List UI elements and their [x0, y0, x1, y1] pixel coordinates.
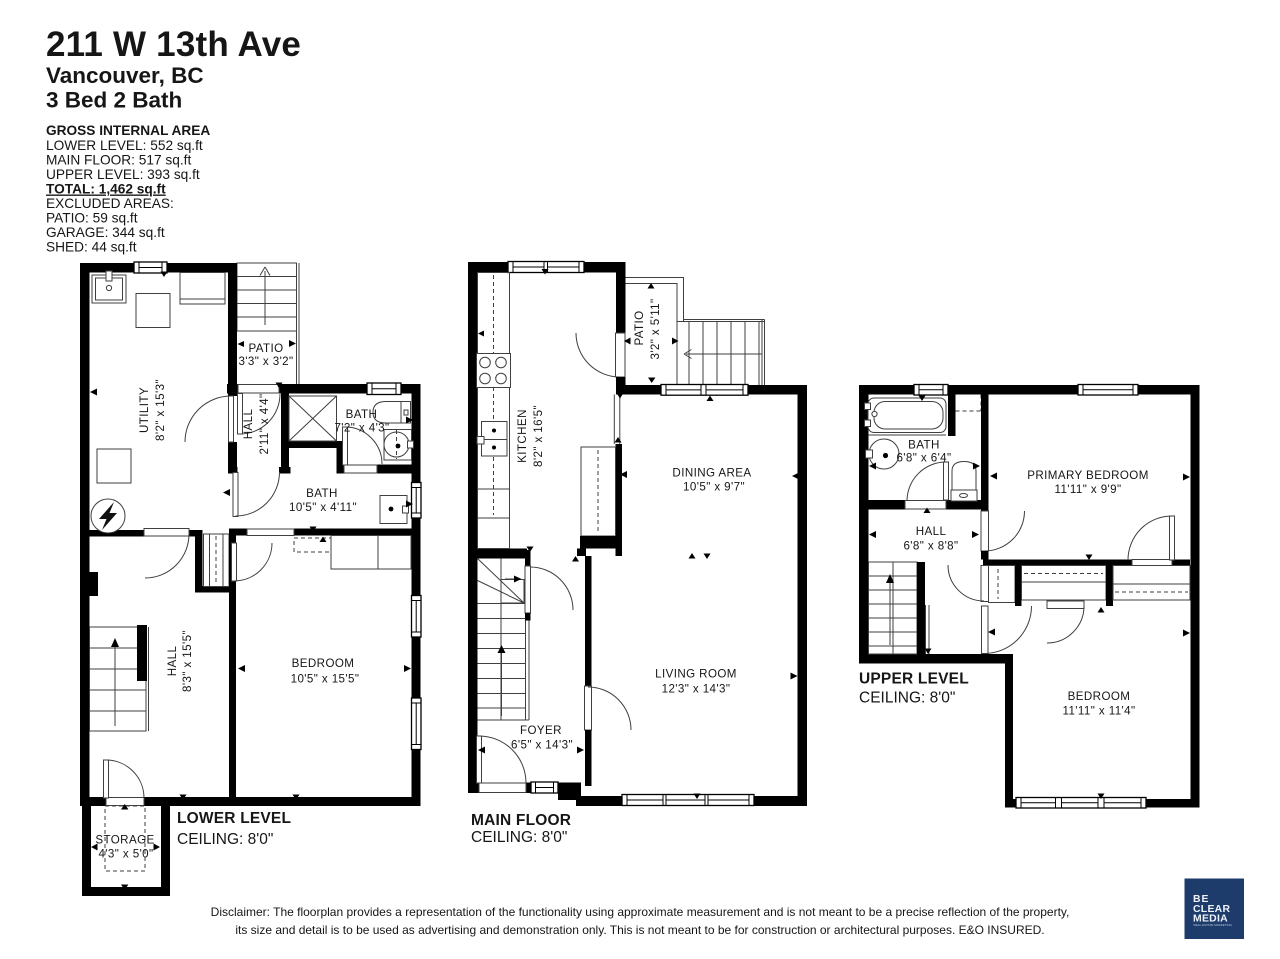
svg-text:6'8" x 8'8": 6'8" x 8'8" [903, 540, 958, 553]
svg-text:PATIO: PATIO [248, 342, 283, 355]
svg-text:CEILING: 8'0": CEILING: 8'0" [471, 829, 567, 846]
svg-text:11'11" x 11'4": 11'11" x 11'4" [1062, 705, 1135, 718]
svg-text:211 W 13th Ave: 211 W 13th Ave [46, 25, 301, 64]
svg-text:MAIN FLOOR: MAIN FLOOR [471, 812, 571, 829]
svg-text:LOWER LEVEL: LOWER LEVEL [177, 810, 291, 827]
svg-text:8'2" x 15'3": 8'2" x 15'3" [154, 379, 167, 441]
svg-text:10'5" x 4'11": 10'5" x 4'11" [289, 501, 357, 514]
svg-text:KITCHEN: KITCHEN [516, 409, 529, 463]
svg-text:BATH: BATH [908, 439, 940, 452]
svg-text:BEDROOM: BEDROOM [292, 657, 355, 670]
svg-text:3 Bed 2 Bath: 3 Bed 2 Bath [46, 88, 182, 113]
svg-text:UPPER LEVEL: UPPER LEVEL [859, 671, 969, 688]
svg-text:6'8" x 6'4": 6'8" x 6'4" [896, 452, 951, 465]
svg-text:LOWER LEVEL: 552 sq.ft: LOWER LEVEL: 552 sq.ft [46, 138, 203, 153]
svg-text:PRIMARY BEDROOM: PRIMARY BEDROOM [1027, 469, 1149, 482]
svg-text:BEDROOM: BEDROOM [1068, 690, 1131, 703]
svg-text:FOYER: FOYER [520, 724, 562, 737]
svg-text:10'5" x 15'5": 10'5" x 15'5" [291, 673, 360, 686]
svg-text:LIVING ROOM: LIVING ROOM [655, 668, 737, 681]
svg-text:4'3" x 5'0": 4'3" x 5'0" [98, 848, 153, 861]
svg-text:UPPER LEVEL: 393 sq.ft: UPPER LEVEL: 393 sq.ft [46, 167, 200, 182]
svg-text:HALL: HALL [916, 525, 947, 538]
svg-text:REAL ESTATE MARKETING: REAL ESTATE MARKETING [1194, 923, 1233, 927]
svg-text:its size and detail is to be u: its size and detail is to be used as adv… [235, 923, 1044, 937]
svg-text:PATIO: 59 sq.ft: PATIO: 59 sq.ft [46, 211, 138, 226]
svg-text:GARAGE: 344 sq.ft: GARAGE: 344 sq.ft [46, 225, 165, 240]
svg-text:PATIO: PATIO [633, 310, 646, 345]
svg-text:CEILING: 8'0": CEILING: 8'0" [859, 690, 955, 707]
svg-text:8'3" x 15'5": 8'3" x 15'5" [181, 630, 194, 692]
svg-text:3'3" x 3'2": 3'3" x 3'2" [238, 355, 293, 368]
svg-text:TOTAL: 1,462 sq.ft: TOTAL: 1,462 sq.ft [46, 182, 166, 197]
svg-text:8'2" x 16'5": 8'2" x 16'5" [532, 405, 545, 467]
svg-text:Disclaimer: The floorplan prov: Disclaimer: The floorplan provides a rep… [211, 905, 1070, 919]
svg-text:3'2" x 5'11": 3'2" x 5'11" [649, 298, 662, 359]
svg-text:11'11" x 9'9": 11'11" x 9'9" [1054, 483, 1121, 496]
svg-text:GROSS INTERNAL AREA: GROSS INTERNAL AREA [46, 123, 210, 138]
svg-text:DINING AREA: DINING AREA [672, 467, 751, 480]
svg-text:STORAGE: STORAGE [95, 834, 154, 847]
svg-text:SHED: 44 sq.ft: SHED: 44 sq.ft [46, 240, 137, 255]
svg-text:Vancouver, BC: Vancouver, BC [46, 63, 204, 88]
svg-text:HALL: HALL [166, 646, 179, 677]
svg-text:12'3" x 14'3": 12'3" x 14'3" [662, 683, 731, 696]
svg-text:CEILING: 8'0": CEILING: 8'0" [177, 831, 273, 848]
svg-text:BATH: BATH [306, 487, 338, 500]
svg-text:UTILITY: UTILITY [138, 387, 151, 433]
svg-text:HALL: HALL [242, 409, 255, 440]
svg-text:7'2" x 4'3": 7'2" x 4'3" [334, 422, 389, 435]
svg-text:BATH: BATH [346, 408, 378, 421]
svg-text:10'5" x 9'7": 10'5" x 9'7" [683, 481, 745, 494]
svg-text:MAIN FLOOR: 517 sq.ft: MAIN FLOOR: 517 sq.ft [46, 153, 191, 168]
svg-text:EXCLUDED AREAS:: EXCLUDED AREAS: [46, 196, 174, 211]
svg-text:2'11" x 4'4": 2'11" x 4'4" [258, 393, 271, 454]
svg-text:6'5" x 14'3": 6'5" x 14'3" [511, 739, 573, 752]
